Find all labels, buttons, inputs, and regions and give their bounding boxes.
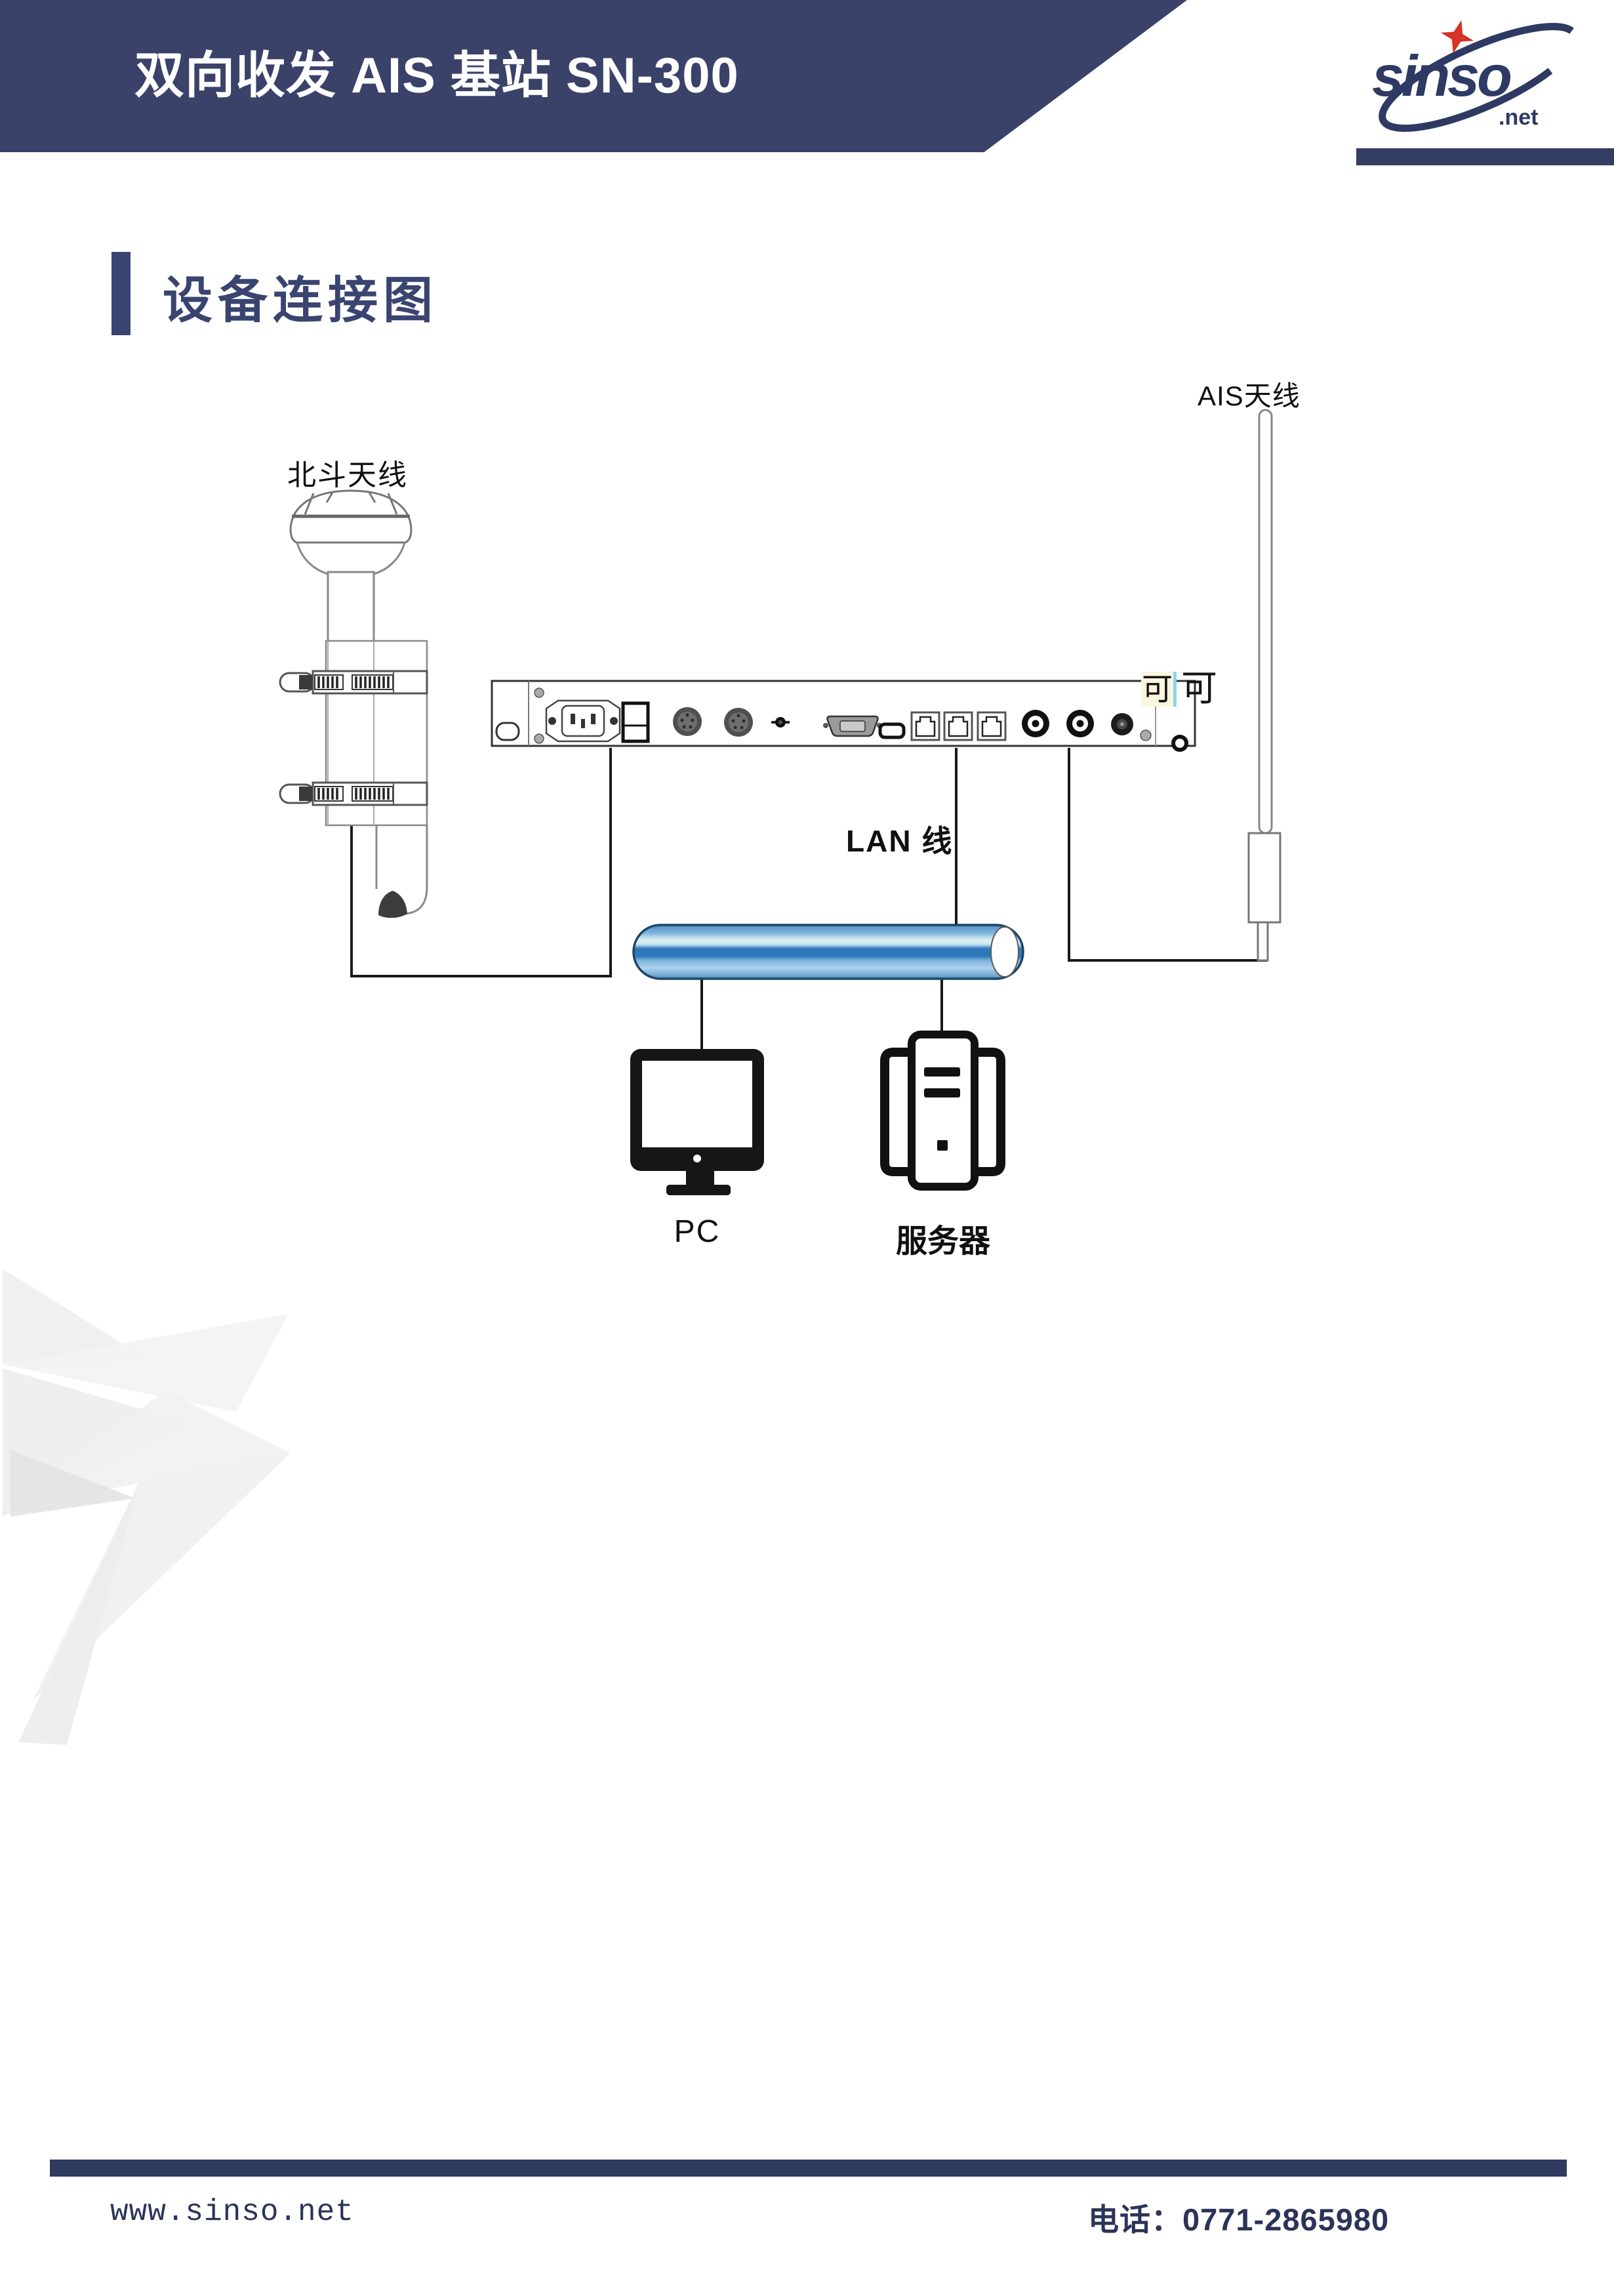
connection-wires — [352, 748, 1267, 1050]
bnc-connector-icon — [1022, 710, 1049, 737]
beidou-antenna-icon — [280, 491, 427, 918]
page: 双向收发 AIS 基站 SN-300 sinso .net 设备连接图 — [0, 0, 1614, 2296]
ais-antenna-icon — [1249, 410, 1280, 960]
device-connection-diagram — [0, 0, 1614, 2296]
hdmi-port-icon — [880, 724, 904, 737]
din-connector-icon — [724, 708, 753, 737]
footer-divider-bar — [50, 2160, 1567, 2177]
server-label: 服务器 — [879, 1215, 1007, 1261]
pole-clamp-icon — [280, 783, 427, 805]
power-switch-icon — [623, 703, 648, 741]
ais-wire — [1069, 748, 1267, 960]
lan-cable-label: LAN 线 — [846, 817, 953, 861]
stray-char-1: 可 — [1141, 672, 1177, 707]
cable-connector-icon — [378, 891, 407, 918]
beidou-antenna-label: 北斗天线 — [287, 451, 408, 493]
pc-icon — [630, 1049, 764, 1195]
panel-screw-icon — [535, 688, 544, 697]
footer-website: www.sinso.net — [110, 2195, 354, 2229]
ais-antenna-label: AIS天线 — [1198, 374, 1301, 414]
bnc-connector-icon — [1111, 713, 1133, 735]
rack-ear-hole — [496, 723, 519, 740]
serial-port-icon — [823, 716, 882, 736]
pc-label: PC — [630, 1214, 764, 1250]
stray-char-2: 可 — [1181, 670, 1217, 707]
pole-clamp-icon — [280, 671, 427, 693]
footer-phone: 电话：0771-2865980 — [1088, 2194, 1389, 2240]
panel-screw-icon — [535, 734, 544, 743]
power-inlet-icon — [546, 701, 620, 741]
base-station-icon — [492, 681, 1195, 750]
lan-bus-icon — [634, 925, 1023, 979]
rj45-port-icon — [912, 712, 939, 740]
bnc-connector-icon — [1066, 710, 1094, 737]
rack-ear-hole — [1173, 737, 1186, 750]
watermark-shape — [3, 1269, 291, 1745]
server-icon — [885, 1035, 1001, 1187]
din-connector-icon — [673, 707, 702, 736]
stray-annotation-text: 可 可 — [1141, 670, 1217, 707]
rj45-port-icon — [944, 712, 972, 740]
panel-screw-icon — [1140, 730, 1151, 741]
rj45-port-icon — [978, 712, 1005, 740]
